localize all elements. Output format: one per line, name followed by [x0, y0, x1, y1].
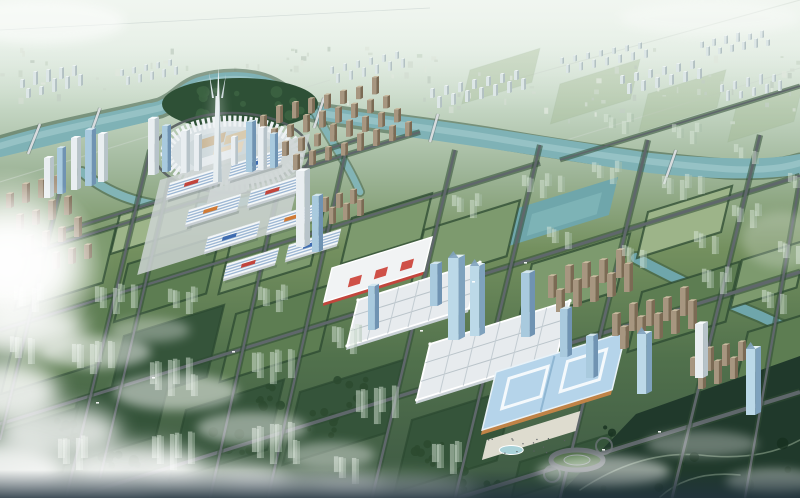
- distant-block: [258, 64, 260, 70]
- tree-clump: [269, 384, 276, 391]
- dist-building: [662, 66, 667, 75]
- dist-building: [479, 87, 484, 99]
- dist-building: [521, 78, 526, 90]
- tan-building: [389, 125, 396, 141]
- tree-clump: [777, 438, 789, 450]
- dist-building: [706, 46, 710, 56]
- distant-block: [96, 77, 99, 79]
- tan-building: [357, 132, 364, 150]
- distant-block: [408, 61, 413, 67]
- dist-building: [599, 50, 603, 57]
- distant-block: [449, 107, 454, 114]
- dist-building: [730, 44, 734, 52]
- tan-building: [624, 262, 633, 292]
- dist-building: [765, 84, 769, 94]
- tan-building: [383, 95, 390, 108]
- distant-block: [796, 61, 800, 65]
- dist-building: [500, 73, 505, 83]
- glass-building: [586, 334, 598, 378]
- dist-building: [369, 57, 373, 65]
- distant-block: [19, 70, 23, 77]
- dist-building: [612, 47, 616, 54]
- white-building: [181, 129, 190, 173]
- dist-building: [648, 69, 653, 78]
- dist-building: [174, 66, 178, 75]
- tan-building: [548, 274, 557, 298]
- car: [96, 402, 99, 404]
- distant-block: [702, 80, 705, 83]
- dist-building: [754, 38, 758, 48]
- tan-building: [322, 197, 329, 212]
- distant-block: [290, 69, 292, 71]
- dist-building: [724, 35, 728, 44]
- distant-block: [657, 88, 659, 92]
- dist-building: [330, 66, 334, 74]
- distant-block: [57, 94, 61, 101]
- corner-pylon: [356, 298, 359, 301]
- tree-clump: [239, 449, 245, 455]
- dist-building: [486, 76, 491, 86]
- dist-building: [573, 55, 577, 62]
- tan-building: [330, 123, 337, 141]
- tree-clump: [414, 445, 420, 451]
- plaza-figure: [533, 450, 534, 451]
- distant-block: [295, 49, 297, 53]
- tree-clump: [328, 432, 334, 438]
- distant-block: [544, 108, 548, 114]
- distant-block: [633, 95, 637, 101]
- glass-building: [270, 132, 278, 168]
- dist-building: [625, 45, 629, 52]
- distant-block: [615, 67, 619, 74]
- city-aerial-rendering: [0, 0, 800, 498]
- distant-block: [732, 89, 734, 95]
- dist-building: [20, 79, 25, 88]
- plaza-figure: [564, 440, 565, 441]
- dist-building: [676, 63, 681, 72]
- dist-building: [620, 75, 625, 84]
- dist-building: [690, 60, 695, 69]
- dist-building: [46, 69, 51, 82]
- rendering-canvas: [0, 0, 800, 498]
- tan-building: [324, 93, 331, 108]
- tan-building: [282, 141, 289, 156]
- tan-building: [343, 203, 350, 220]
- dist-building: [766, 39, 770, 46]
- corner-pylon: [568, 299, 571, 302]
- dist-building: [430, 88, 435, 98]
- tan-building: [378, 112, 385, 127]
- dist-building: [718, 47, 722, 54]
- white-building: [296, 168, 310, 247]
- tan-building: [730, 356, 738, 379]
- tan-building: [620, 325, 629, 349]
- distant-block: [714, 56, 718, 64]
- dist-building: [388, 61, 392, 71]
- tan-building: [573, 278, 582, 307]
- tan-building: [367, 99, 374, 113]
- dist-building: [78, 74, 83, 86]
- dist-building: [655, 77, 660, 88]
- car: [658, 431, 661, 433]
- bottom-shadow-band: [0, 470, 800, 498]
- dist-building: [641, 80, 646, 91]
- dist-building: [592, 59, 596, 68]
- dist-building: [362, 67, 366, 77]
- dist-building: [700, 41, 704, 48]
- tree-clump: [240, 101, 246, 107]
- tan-building: [671, 309, 680, 334]
- tan-building: [308, 97, 315, 113]
- tan-building: [357, 199, 364, 216]
- plaza-figure: [548, 438, 549, 439]
- distant-block: [504, 99, 506, 105]
- plaza-figure: [546, 452, 547, 453]
- tan-building: [292, 101, 299, 118]
- dist-building: [52, 78, 57, 92]
- dist-building: [168, 59, 172, 66]
- dist-building: [618, 54, 622, 63]
- corner-pylon: [345, 344, 348, 347]
- tan-building: [341, 142, 348, 155]
- distant-block: [677, 87, 679, 93]
- tan-building: [329, 207, 336, 224]
- cloud: [110, 318, 190, 342]
- dist-building: [759, 74, 763, 85]
- dist-building: [395, 51, 399, 59]
- tan-building: [394, 108, 401, 122]
- corner-pylon: [428, 342, 431, 345]
- dist-building: [356, 60, 360, 68]
- distant-block: [788, 73, 792, 79]
- dist-building: [493, 84, 498, 96]
- tree-clump: [331, 427, 336, 432]
- plaza-figure: [492, 439, 493, 440]
- tree-clump: [310, 410, 316, 416]
- distant-block: [532, 92, 536, 94]
- distant-block: [595, 112, 597, 116]
- distant-block: [592, 98, 594, 101]
- crystal-building: [448, 251, 465, 340]
- tan-building: [599, 258, 608, 283]
- cloud: [646, 431, 758, 457]
- dist-building: [634, 72, 639, 81]
- car: [232, 351, 235, 353]
- ghost-building-cluster: [356, 386, 399, 424]
- tree-clump: [267, 396, 273, 402]
- tan-building: [293, 154, 300, 170]
- distant-block: [510, 76, 513, 81]
- tan-building: [373, 129, 380, 146]
- distant-block: [434, 60, 438, 62]
- dist-building: [382, 54, 386, 62]
- distant-block: [720, 81, 723, 84]
- distant-block: [347, 101, 349, 106]
- white-building: [148, 117, 159, 175]
- dist-building: [697, 68, 702, 79]
- dist-building: [669, 74, 674, 85]
- distant-block: [428, 112, 432, 114]
- cloud: [285, 442, 375, 468]
- dist-building: [586, 52, 590, 59]
- tree-clump: [320, 408, 328, 416]
- tan-building: [629, 302, 638, 331]
- distant-block: [0, 73, 4, 76]
- tan-building: [646, 299, 655, 326]
- tan-building: [319, 110, 326, 127]
- tan-building: [346, 119, 353, 136]
- white-building: [71, 136, 81, 190]
- glass-building: [521, 270, 535, 337]
- plaza-figure: [488, 439, 489, 440]
- tree-clump: [259, 402, 268, 411]
- dist-building: [733, 81, 737, 90]
- tan-building: [335, 106, 342, 122]
- dist-building: [156, 62, 160, 69]
- tree-clump: [276, 401, 285, 410]
- dist-building: [150, 71, 154, 80]
- dist-building: [65, 76, 70, 89]
- plaza-figure: [533, 442, 534, 443]
- plaza-figure: [536, 439, 537, 440]
- glass-building: [85, 128, 96, 186]
- distant-block: [246, 64, 249, 68]
- tree-clump: [271, 86, 283, 98]
- distant-block: [307, 53, 309, 57]
- dist-building: [720, 84, 724, 92]
- dist-building: [638, 42, 642, 49]
- white-building: [231, 136, 238, 165]
- distant-block: [709, 74, 712, 77]
- tan-building: [309, 150, 316, 165]
- dist-building: [644, 49, 648, 58]
- cloud: [114, 374, 238, 410]
- distant-block: [634, 66, 636, 70]
- distant-block: [620, 109, 625, 113]
- distant-block: [596, 78, 601, 83]
- car: [524, 262, 527, 264]
- distant-block: [730, 121, 735, 124]
- dist-building: [778, 80, 782, 91]
- white-building: [194, 133, 202, 171]
- corner-pylon: [415, 398, 418, 401]
- dist-building: [437, 96, 442, 108]
- tree-clump: [198, 86, 210, 98]
- distant-block: [781, 56, 784, 58]
- dist-building: [120, 69, 124, 76]
- distant-block: [391, 75, 394, 79]
- car: [602, 449, 605, 451]
- dist-building: [465, 90, 470, 102]
- crystal-building: [470, 259, 485, 336]
- glass-building: [560, 307, 572, 357]
- distant-block: [568, 119, 570, 123]
- distant-block: [22, 51, 25, 57]
- tan-building: [722, 343, 730, 366]
- distant-block: [404, 72, 408, 78]
- distant-block: [704, 92, 707, 95]
- distant-block: [41, 83, 46, 85]
- glass-building: [162, 124, 171, 172]
- distant-block: [417, 54, 422, 58]
- tan-building: [298, 137, 305, 151]
- tan-building: [663, 296, 672, 321]
- tan-building: [582, 261, 591, 288]
- distant-block: [790, 69, 794, 72]
- plaza-figure: [516, 451, 517, 452]
- distant-block: [594, 90, 599, 95]
- tan-building: [303, 114, 310, 132]
- fountain: [499, 446, 523, 455]
- tan-building: [372, 76, 379, 94]
- tree-clump: [425, 459, 430, 464]
- plaza-figure: [522, 443, 523, 444]
- tree-clump: [346, 402, 352, 408]
- tan-building: [738, 340, 746, 361]
- tan-building: [405, 121, 412, 136]
- dist-building: [162, 69, 166, 78]
- dist-building: [514, 70, 519, 80]
- plaza-figure: [543, 447, 544, 448]
- tan-building: [336, 193, 343, 208]
- tree-clump: [603, 425, 607, 429]
- dist-building: [144, 64, 148, 71]
- distant-block: [365, 47, 369, 51]
- dist-building: [631, 52, 635, 61]
- tan-building: [350, 189, 357, 204]
- distant-block: [171, 49, 174, 55]
- dist-building: [132, 67, 136, 74]
- distant-block: [662, 95, 666, 97]
- distant-block: [530, 86, 535, 88]
- dist-building: [336, 73, 340, 83]
- distant-block: [478, 72, 481, 76]
- distant-block: [423, 98, 425, 102]
- tan-building: [714, 359, 722, 384]
- distant-block: [697, 89, 701, 95]
- dist-building: [33, 71, 38, 85]
- distant-block: [103, 88, 106, 90]
- dist-building: [451, 93, 456, 105]
- distant-block: [287, 58, 290, 61]
- tan-building: [680, 286, 689, 316]
- distant-block: [458, 93, 461, 97]
- dist-building: [343, 63, 347, 71]
- white-building: [258, 126, 267, 170]
- distant-block: [770, 81, 773, 88]
- tree-clump: [608, 429, 616, 437]
- dist-building: [349, 70, 353, 80]
- distant-block: [328, 47, 331, 52]
- tree-clump: [345, 381, 353, 389]
- distant-block: [115, 69, 120, 76]
- glass-building: [246, 120, 256, 172]
- distant-block: [18, 98, 23, 104]
- dist-building: [458, 82, 463, 92]
- car: [472, 281, 475, 283]
- distant-block: [585, 102, 588, 106]
- tan-building: [362, 116, 369, 132]
- dist-building: [752, 87, 756, 96]
- tree-clump: [430, 461, 435, 466]
- dist-building: [739, 91, 743, 99]
- tan-building: [276, 105, 283, 123]
- tan-building: [590, 275, 599, 302]
- distant-block: [368, 53, 373, 55]
- dist-building: [605, 57, 609, 66]
- distant-block: [30, 60, 34, 63]
- tan-building: [654, 312, 663, 339]
- distant-block: [793, 108, 796, 111]
- dist-building: [126, 76, 130, 85]
- dist-building: [772, 74, 776, 82]
- distant-block: [301, 60, 304, 65]
- tan-building: [612, 312, 621, 336]
- dist-building: [627, 83, 632, 94]
- distant-block: [765, 103, 769, 108]
- dist-building: [712, 38, 716, 46]
- distant-block: [186, 66, 189, 71]
- tan-building: [287, 124, 294, 137]
- cloud: [620, 0, 800, 36]
- white-building: [98, 132, 108, 182]
- tan-building: [260, 115, 267, 128]
- plaza-figure: [511, 438, 512, 439]
- tan-building: [351, 103, 358, 118]
- dist-building: [746, 77, 750, 87]
- car: [420, 330, 423, 332]
- distant-block: [291, 49, 295, 51]
- distant-block: [424, 66, 426, 72]
- dist-building: [683, 71, 688, 82]
- glass-building: [312, 194, 323, 252]
- tree-clump: [423, 440, 431, 448]
- tan-building: [607, 272, 616, 297]
- dist-building: [579, 62, 583, 71]
- distant-block: [653, 48, 656, 52]
- dist-building: [742, 41, 746, 50]
- dist-building: [560, 57, 564, 64]
- distant-block: [782, 71, 787, 78]
- distant-block: [151, 63, 153, 69]
- dist-building: [726, 90, 730, 101]
- distant-block: [428, 76, 431, 83]
- distant-block: [601, 100, 605, 104]
- tree-clump: [234, 91, 239, 96]
- dist-building: [507, 81, 512, 93]
- dist-building: [444, 85, 449, 95]
- dist-building: [566, 64, 570, 73]
- glass-building: [430, 262, 442, 306]
- tree-clump: [363, 377, 369, 383]
- crystal-building: [637, 327, 652, 394]
- distant-block: [457, 106, 461, 110]
- tan-building: [314, 133, 321, 146]
- tan-building: [325, 146, 332, 160]
- plaza-figure: [512, 440, 513, 441]
- tan-building: [565, 264, 574, 293]
- tan-building: [340, 90, 347, 104]
- scene-layers: [0, 0, 800, 498]
- plaza-figure: [504, 453, 505, 454]
- glass-building: [368, 284, 379, 330]
- tree-clump: [333, 376, 341, 384]
- distant-block: [45, 61, 48, 65]
- crystal-building: [746, 342, 761, 415]
- distant-block: [294, 66, 299, 73]
- dist-building: [138, 74, 142, 83]
- dist-building: [401, 58, 405, 68]
